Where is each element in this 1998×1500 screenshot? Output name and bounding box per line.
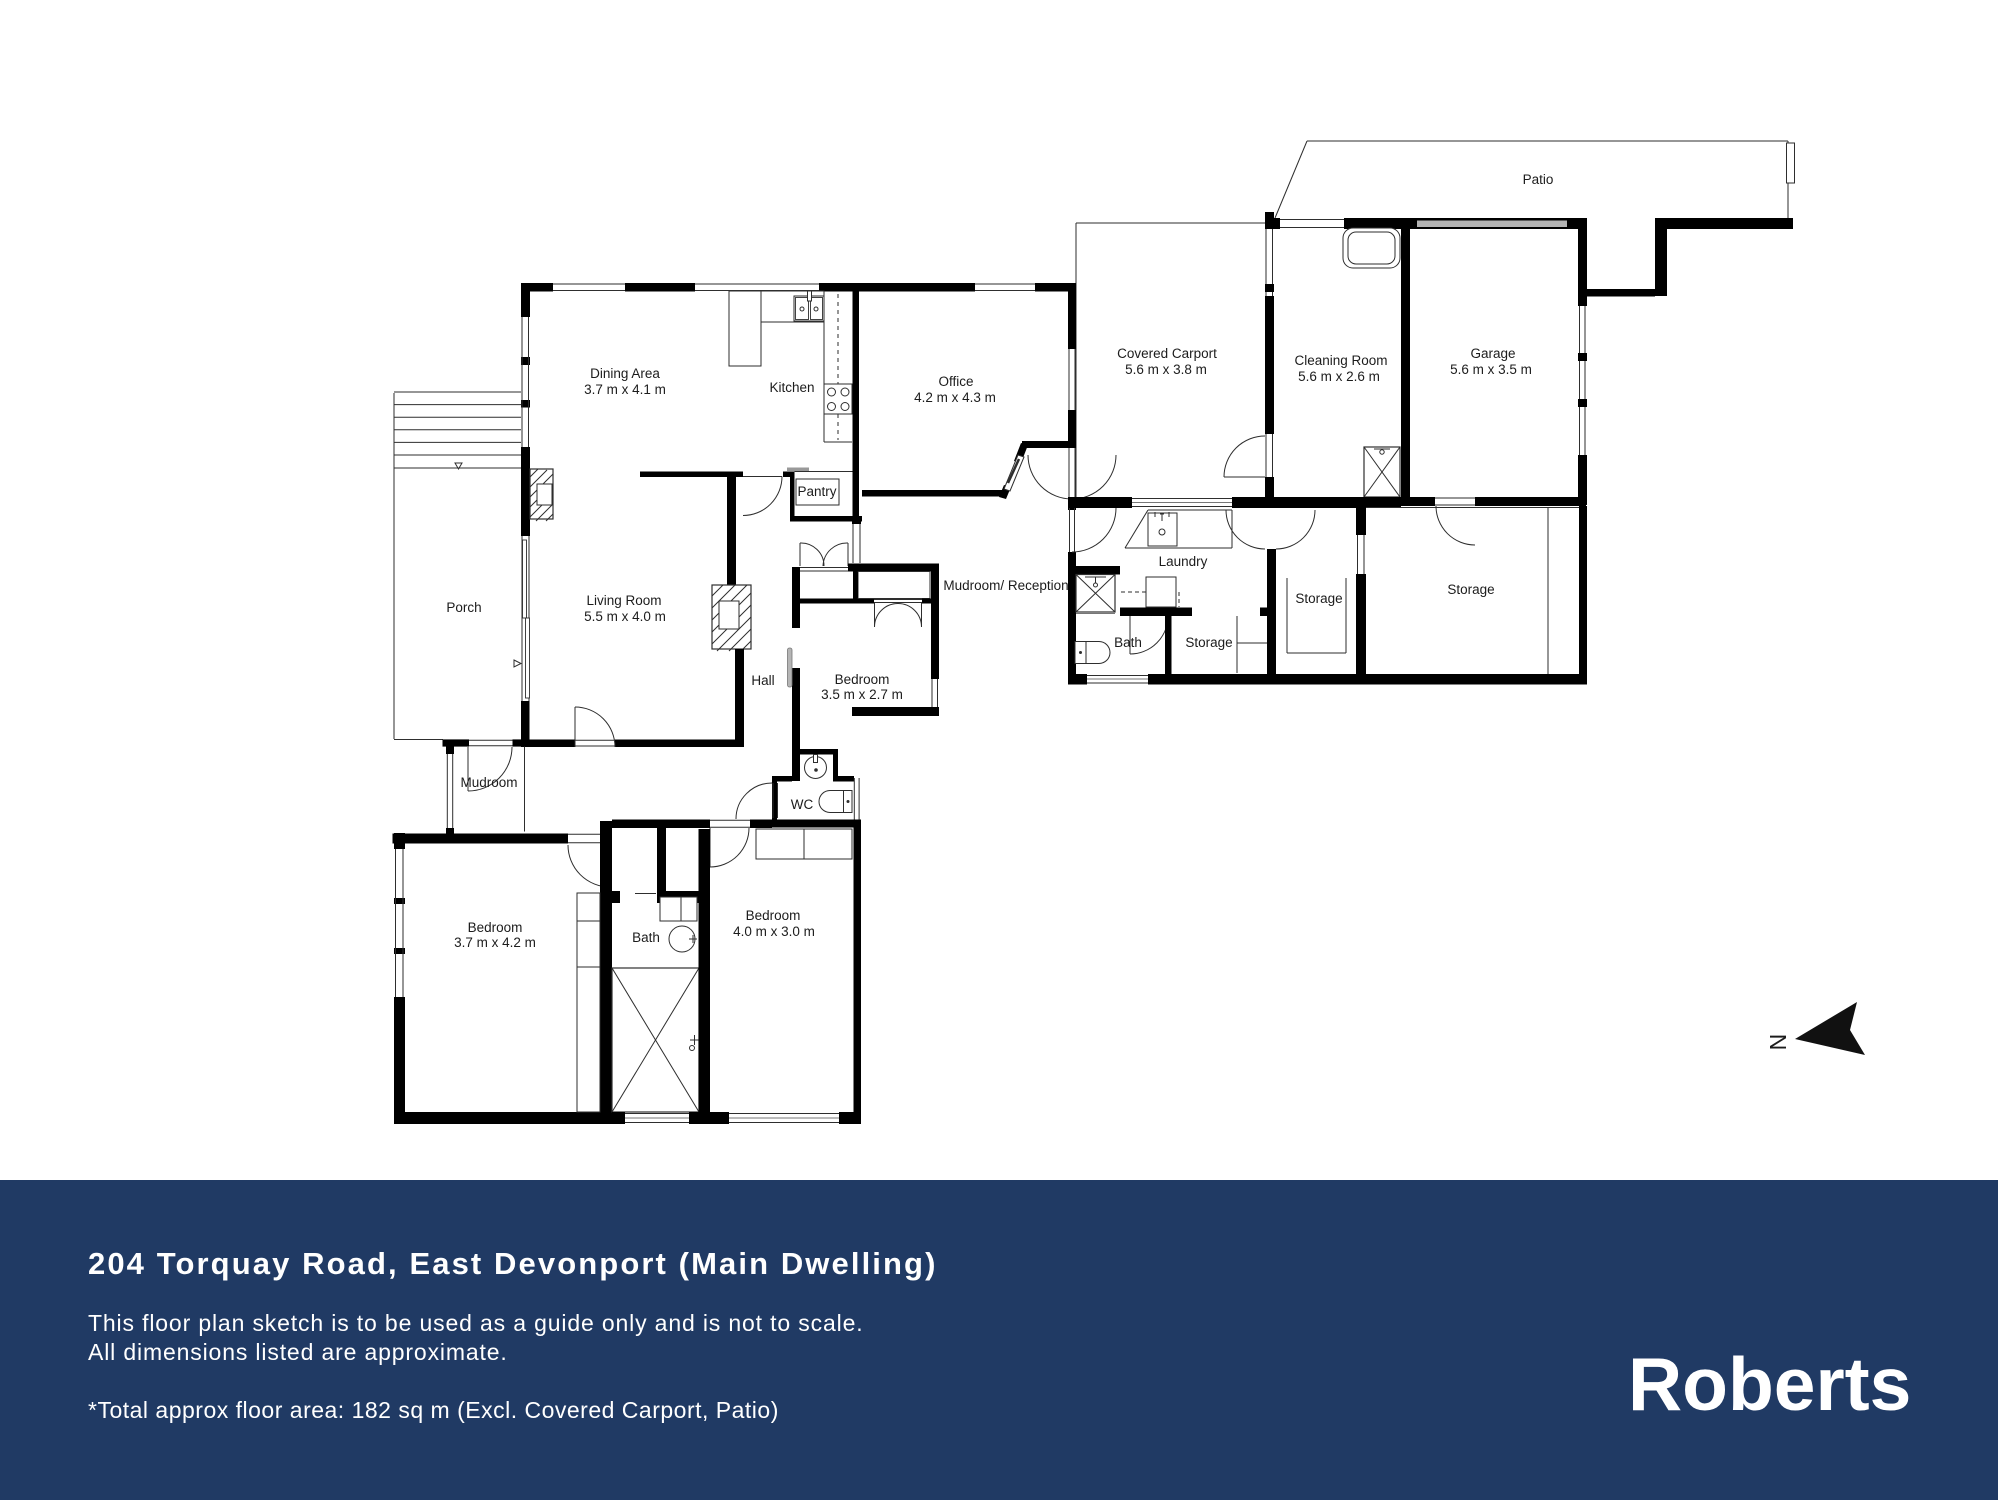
svg-text:Garage: Garage [1470,346,1515,361]
svg-text:5.6 m x 3.8 m: 5.6 m x 3.8 m [1125,362,1207,377]
svg-text:Bedroom: Bedroom [468,920,523,935]
svg-text:Bath: Bath [1114,635,1142,650]
svg-text:Laundry: Laundry [1159,554,1208,569]
svg-text:Patio: Patio [1523,172,1554,187]
svg-text:5.5 m x 4.0 m: 5.5 m x 4.0 m [584,609,666,624]
svg-text:Covered Carport: Covered Carport [1117,346,1217,361]
svg-text:4.2 m x 4.3 m: 4.2 m x 4.3 m [914,390,996,405]
svg-text:Storage: Storage [1185,635,1232,650]
svg-text:Roberts: Roberts [1628,1342,1911,1426]
svg-text:WC: WC [791,797,814,812]
svg-text:N: N [1765,1034,1791,1051]
svg-text:Mudroom/ Reception: Mudroom/ Reception [943,578,1068,593]
svg-text:3.5 m x 2.7 m: 3.5 m x 2.7 m [821,687,903,702]
svg-text:All dimensions listed are appr: All dimensions listed are approximate. [88,1339,508,1365]
svg-text:Living Room: Living Room [586,593,661,608]
svg-text:Bath: Bath [632,930,660,945]
svg-text:Bedroom: Bedroom [835,672,890,687]
svg-text:Bedroom: Bedroom [746,908,801,923]
svg-text:This floor plan sketch is to b: This floor plan sketch is to be used as … [88,1310,863,1336]
svg-text:204 Torquay Road, East Devonpo: 204 Torquay Road, East Devonport (Main D… [88,1246,938,1281]
svg-text:Porch: Porch [446,600,481,615]
svg-text:Storage: Storage [1295,591,1342,606]
svg-text:Dining Area: Dining Area [590,366,660,381]
svg-text:Hall: Hall [751,673,774,688]
svg-text:3.7 m x 4.2 m: 3.7 m x 4.2 m [454,935,536,950]
svg-text:*Total approx floor area: 182: *Total approx floor area: 182 sq m (Excl… [88,1397,779,1423]
svg-text:4.0 m x 3.0 m: 4.0 m x 3.0 m [733,924,815,939]
svg-text:Mudroom: Mudroom [460,775,517,790]
svg-text:Storage: Storage [1447,582,1494,597]
svg-text:5.6 m x 3.5 m: 5.6 m x 3.5 m [1450,362,1532,377]
svg-text:Kitchen: Kitchen [769,380,814,395]
svg-text:5.6 m x 2.6 m: 5.6 m x 2.6 m [1298,369,1380,384]
svg-text:Office: Office [938,374,973,389]
svg-text:Pantry: Pantry [797,484,836,499]
svg-text:Cleaning Room: Cleaning Room [1294,353,1387,368]
svg-text:3.7 m x 4.1 m: 3.7 m x 4.1 m [584,382,666,397]
